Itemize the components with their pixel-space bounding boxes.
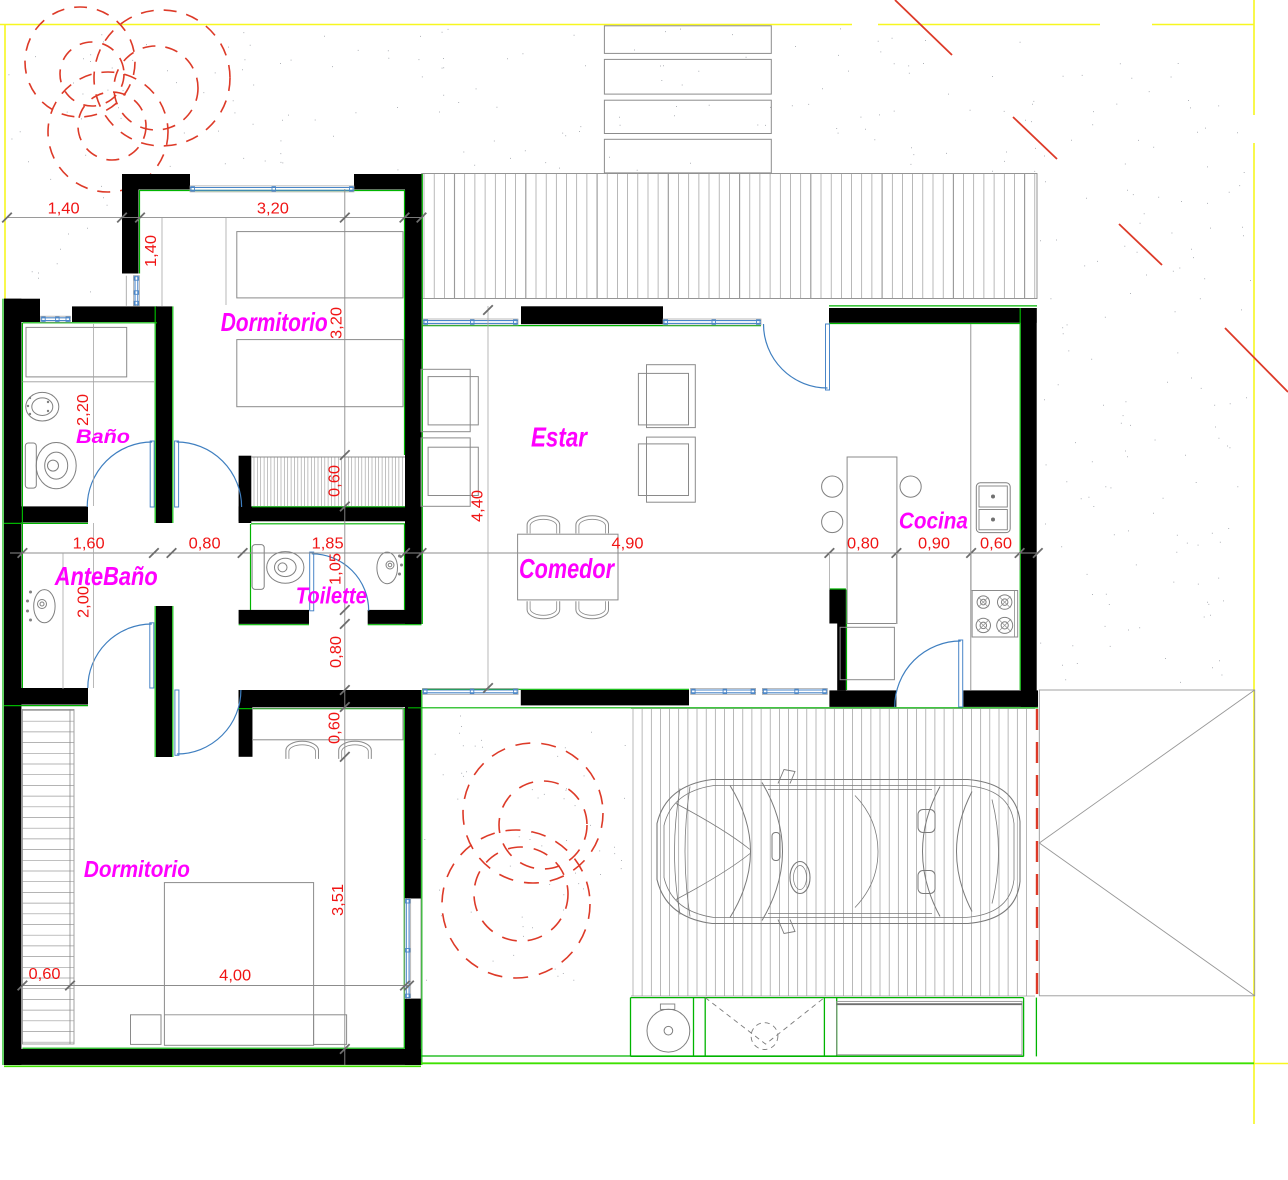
svg-text:Estar: Estar (531, 422, 589, 453)
svg-text:Baño: Baño (76, 427, 130, 448)
svg-text:0,60: 0,60 (327, 465, 344, 497)
svg-text:Comedor: Comedor (519, 553, 616, 584)
svg-text:0,60: 0,60 (327, 712, 344, 744)
svg-text:1,05: 1,05 (328, 553, 345, 585)
svg-text:1,40: 1,40 (48, 201, 80, 218)
svg-text:3,51: 3,51 (330, 884, 347, 916)
svg-text:4,40: 4,40 (469, 490, 486, 522)
svg-text:0,80: 0,80 (328, 636, 345, 668)
svg-text:1,85: 1,85 (312, 536, 344, 553)
svg-text:4,90: 4,90 (612, 536, 644, 553)
svg-text:0,60: 0,60 (980, 536, 1012, 553)
svg-text:0,60: 0,60 (29, 966, 61, 983)
svg-text:1,60: 1,60 (73, 536, 105, 553)
svg-text:2,20: 2,20 (75, 394, 92, 426)
svg-text:Cocina: Cocina (899, 507, 968, 533)
svg-text:0,90: 0,90 (918, 536, 950, 553)
svg-text:Dormitorio: Dormitorio (221, 307, 328, 337)
svg-text:Toilette: Toilette (296, 582, 367, 608)
svg-text:0,80: 0,80 (847, 536, 879, 553)
svg-text:1,40: 1,40 (143, 235, 160, 267)
svg-text:Dormitorio: Dormitorio (84, 856, 190, 882)
svg-text:3,20: 3,20 (329, 307, 346, 339)
svg-text:4,00: 4,00 (219, 968, 251, 985)
svg-text:3,20: 3,20 (257, 201, 289, 218)
svg-text:0,80: 0,80 (189, 536, 221, 553)
svg-text:AnteBaño: AnteBaño (54, 561, 158, 591)
